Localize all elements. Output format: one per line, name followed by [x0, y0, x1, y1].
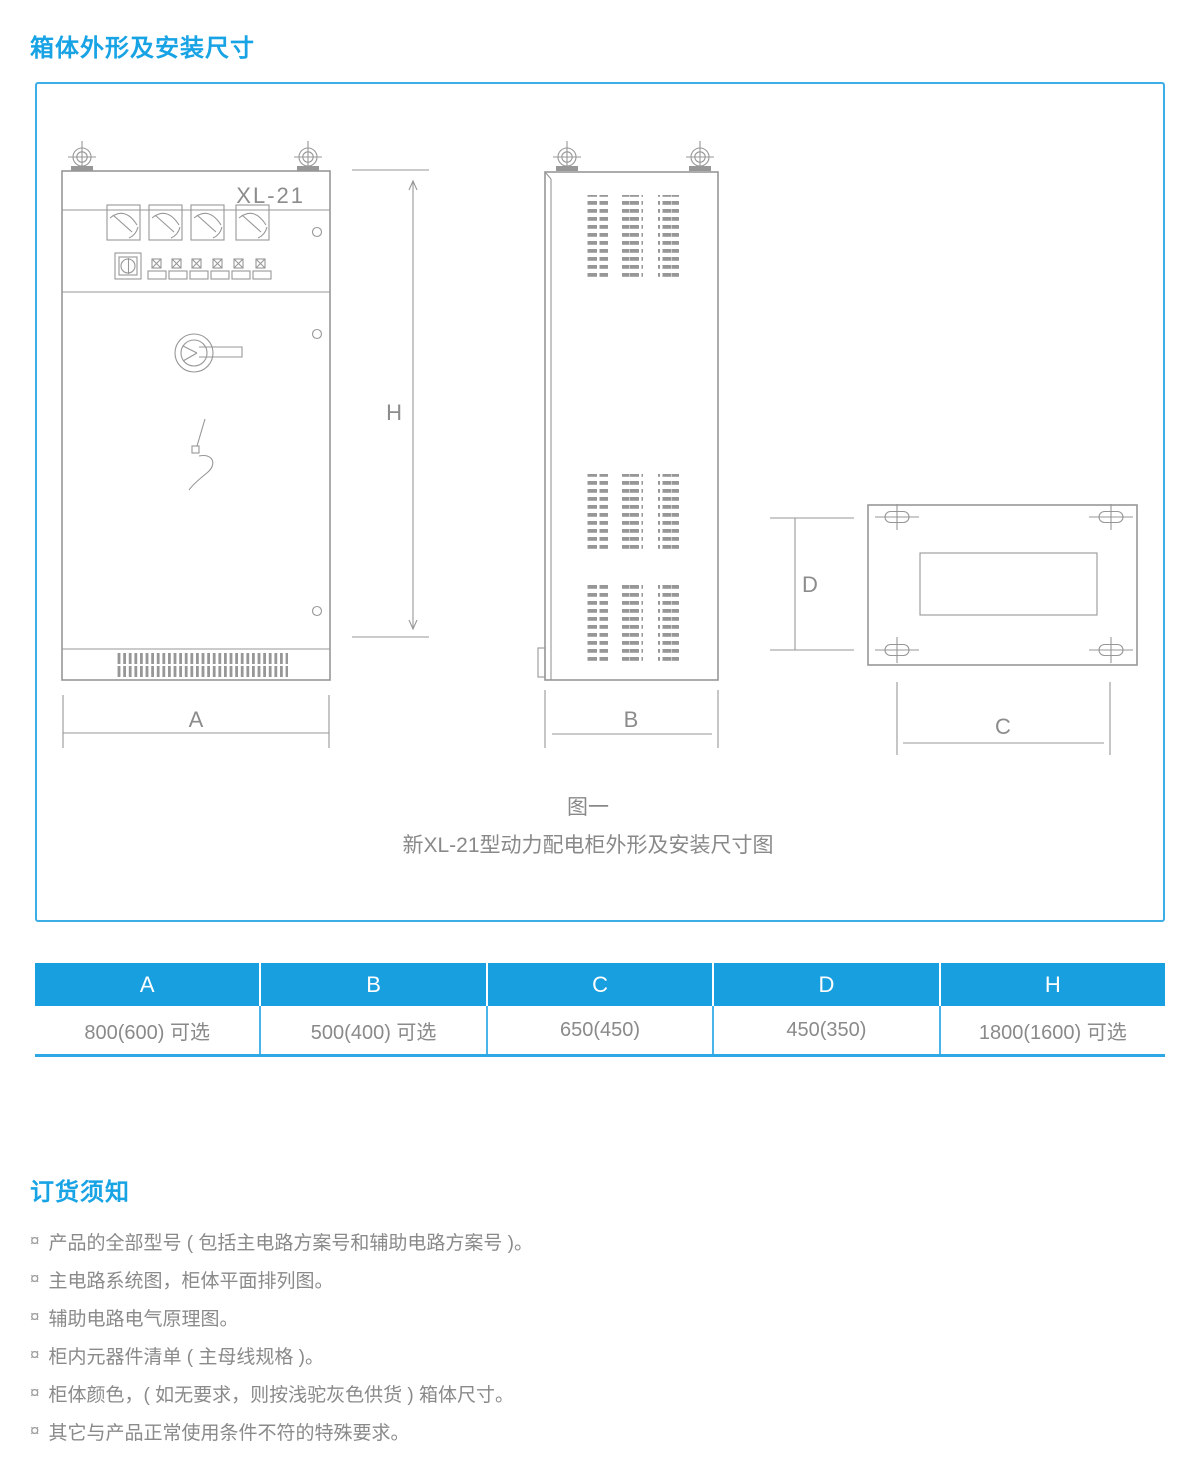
table-header-b: B: [261, 963, 485, 1006]
door-knob-icon: [313, 228, 322, 237]
dimension-a: A: [63, 695, 329, 748]
bullet-icon: ¤: [30, 1345, 39, 1365]
selector-switch-icon: [115, 253, 141, 279]
table-header-row: A B C D H: [35, 963, 1165, 1006]
ordering-section-title: 订货须知: [30, 1172, 130, 1207]
note-text: 产品的全部型号 ( 包括主电路方案号和辅助电路方案号 )。: [48, 1228, 533, 1255]
note-text: 主电路系统图，柜体平面排列图。: [48, 1266, 333, 1293]
note-text: 其它与产品正常使用条件不符的特殊要求。: [48, 1418, 409, 1445]
lifting-eye-icon: [553, 141, 581, 171]
table-value-h: 1800(1600) 可选: [941, 1006, 1165, 1054]
mounting-slot-icon: [875, 504, 919, 530]
cabinet-model-label: XL-21: [236, 183, 305, 208]
list-item: ¤ 柜内元器件清单 ( 主母线规格 )。: [30, 1336, 533, 1374]
list-item: ¤ 辅助电路电气原理图。: [30, 1298, 533, 1336]
mounting-slot-icon: [875, 637, 919, 663]
dim-label-a: A: [189, 707, 204, 732]
note-text: 柜体颜色，( 如无要求，则按浅驼灰色供货 ) 箱体尺寸。: [48, 1380, 514, 1407]
table-value-row: 800(600) 可选 500(400) 可选 650(450) 450(350…: [35, 1006, 1165, 1057]
ordering-notes-list: ¤ 产品的全部型号 ( 包括主电路方案号和辅助电路方案号 )。 ¤ 主电路系统图…: [30, 1222, 533, 1450]
dim-label-d: D: [802, 572, 818, 597]
bullet-icon: ¤: [30, 1231, 39, 1251]
lightning-arrow-icon: [189, 419, 213, 490]
table-header-h: H: [941, 963, 1165, 1006]
bullet-icon: ¤: [30, 1421, 39, 1441]
vent-grille: [117, 653, 288, 677]
indicator-lamps: [148, 259, 271, 279]
figure-title: 新XL-21型动力配电柜外形及安装尺寸图: [402, 834, 773, 857]
table-header-d: D: [714, 963, 938, 1006]
dimension-d: D: [770, 518, 854, 650]
lifting-eye-icon: [686, 141, 714, 171]
dim-label-h: H: [386, 400, 402, 425]
figure-caption: 图一 新XL-21型动力配电柜外形及安装尺寸图: [402, 796, 773, 857]
bullet-icon: ¤: [30, 1383, 39, 1403]
dimension-b: B: [545, 690, 718, 748]
table-header-c: C: [488, 963, 712, 1006]
front-view: XL-21: [62, 141, 330, 680]
table-value-d: 450(350): [714, 1006, 940, 1054]
rotary-handle-icon: [175, 334, 242, 372]
page-title: 箱体外形及安装尺寸: [30, 28, 255, 63]
note-text: 辅助电路电气原理图。: [48, 1304, 238, 1331]
figure-number: 图一: [567, 796, 609, 819]
list-item: ¤ 其它与产品正常使用条件不符的特殊要求。: [30, 1412, 533, 1450]
dimension-table: A B C D H 800(600) 可选 500(400) 可选 650(45…: [35, 963, 1165, 1057]
dimension-c: C: [897, 682, 1110, 755]
base-plan-view: [868, 504, 1137, 665]
dim-label-c: C: [995, 714, 1011, 739]
lifting-eye-icon: [294, 141, 322, 171]
dim-label-b: B: [624, 707, 639, 732]
dimension-h: H: [352, 170, 429, 637]
table-value-c: 650(450): [488, 1006, 714, 1054]
lifting-eye-icon: [68, 141, 96, 171]
table-value-a: 800(600) 可选: [35, 1006, 261, 1054]
list-item: ¤ 主电路系统图，柜体平面排列图。: [30, 1260, 533, 1298]
mounting-slot-icon: [1089, 637, 1133, 663]
bullet-icon: ¤: [30, 1269, 39, 1289]
table-value-b: 500(400) 可选: [261, 1006, 487, 1054]
list-item: ¤ 柜体颜色，( 如无要求，则按浅驼灰色供货 ) 箱体尺寸。: [30, 1374, 533, 1412]
bullet-icon: ¤: [30, 1307, 39, 1327]
note-text: 柜内元器件清单 ( 主母线规格 )。: [48, 1342, 324, 1369]
door-knob-icon: [313, 607, 322, 616]
figure-frame: XL-21: [35, 82, 1165, 922]
side-view: [538, 141, 718, 680]
door-knob-icon: [313, 330, 322, 339]
mounting-slot-icon: [1089, 504, 1133, 530]
list-item: ¤ 产品的全部型号 ( 包括主电路方案号和辅助电路方案号 )。: [30, 1222, 533, 1260]
technical-drawing: XL-21: [37, 84, 1163, 920]
louver-vents: [587, 195, 679, 665]
table-header-a: A: [35, 963, 259, 1006]
